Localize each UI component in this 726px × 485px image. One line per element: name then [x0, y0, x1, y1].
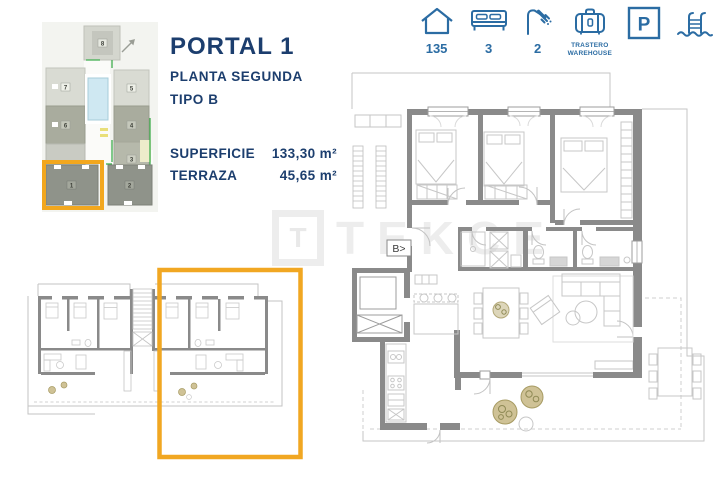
suitcase-icon — [573, 6, 607, 38]
storage-label: TRASTERO WAREHOUSE — [568, 42, 612, 58]
terraza-row: TERRAZA 45,65 m² — [170, 168, 337, 183]
amenity-bathrooms: 2 — [523, 6, 553, 56]
walls — [352, 109, 642, 430]
amenity-bedrooms: 3 — [470, 6, 508, 56]
svg-text:B>: B> — [392, 243, 405, 255]
amenity-storage: TRASTERO WAREHOUSE — [568, 6, 612, 58]
terraza-value: 45,65 m² — [280, 168, 337, 183]
pool-icon — [676, 10, 714, 38]
terraza-label: TERRAZA — [170, 168, 237, 183]
site-plan-thumbnail: 8 7 6 5 4 3 1 2 — [42, 22, 158, 212]
title-block: PORTAL 1 PLANTA SEGUNDA TIPO B — [170, 33, 303, 107]
elevator — [357, 277, 402, 333]
terrace-plants — [493, 302, 543, 424]
shower-icon — [523, 6, 553, 36]
bedrooms-value: 3 — [485, 41, 492, 56]
superficie-row: SUPERFICIE 133,30 m² — [170, 146, 337, 161]
superficie-label: SUPERFICIE — [170, 146, 255, 161]
amenities-bar: 135 3 2 — [404, 6, 714, 58]
amenity-parking: P — [627, 6, 661, 40]
overview-floor-plan — [20, 256, 312, 478]
floorplan-sheet: T TEKCE — [0, 0, 726, 485]
detailed-floor-plan: B> — [340, 60, 726, 480]
bed-icon — [470, 6, 508, 36]
staircase — [353, 146, 386, 208]
amenity-pool — [676, 10, 714, 38]
unit-entry-label: B> — [387, 240, 411, 256]
bathrooms-value: 2 — [534, 41, 541, 56]
portal-title: PORTAL 1 — [170, 33, 303, 61]
planta-subtitle: PLANTA SEGUNDA — [170, 69, 303, 84]
house-icon — [419, 6, 455, 36]
amenity-area: 135 — [419, 6, 455, 56]
superficie-value: 133,30 m² — [272, 146, 337, 161]
furniture — [386, 116, 701, 431]
tipo-subtitle: TIPO B — [170, 92, 303, 107]
parking-icon: P — [627, 6, 661, 40]
parking-letter: P — [638, 15, 651, 36]
house-value: 135 — [426, 41, 448, 56]
area-table: SUPERFICIE 133,30 m² TERRAZA 45,65 m² — [170, 146, 337, 190]
